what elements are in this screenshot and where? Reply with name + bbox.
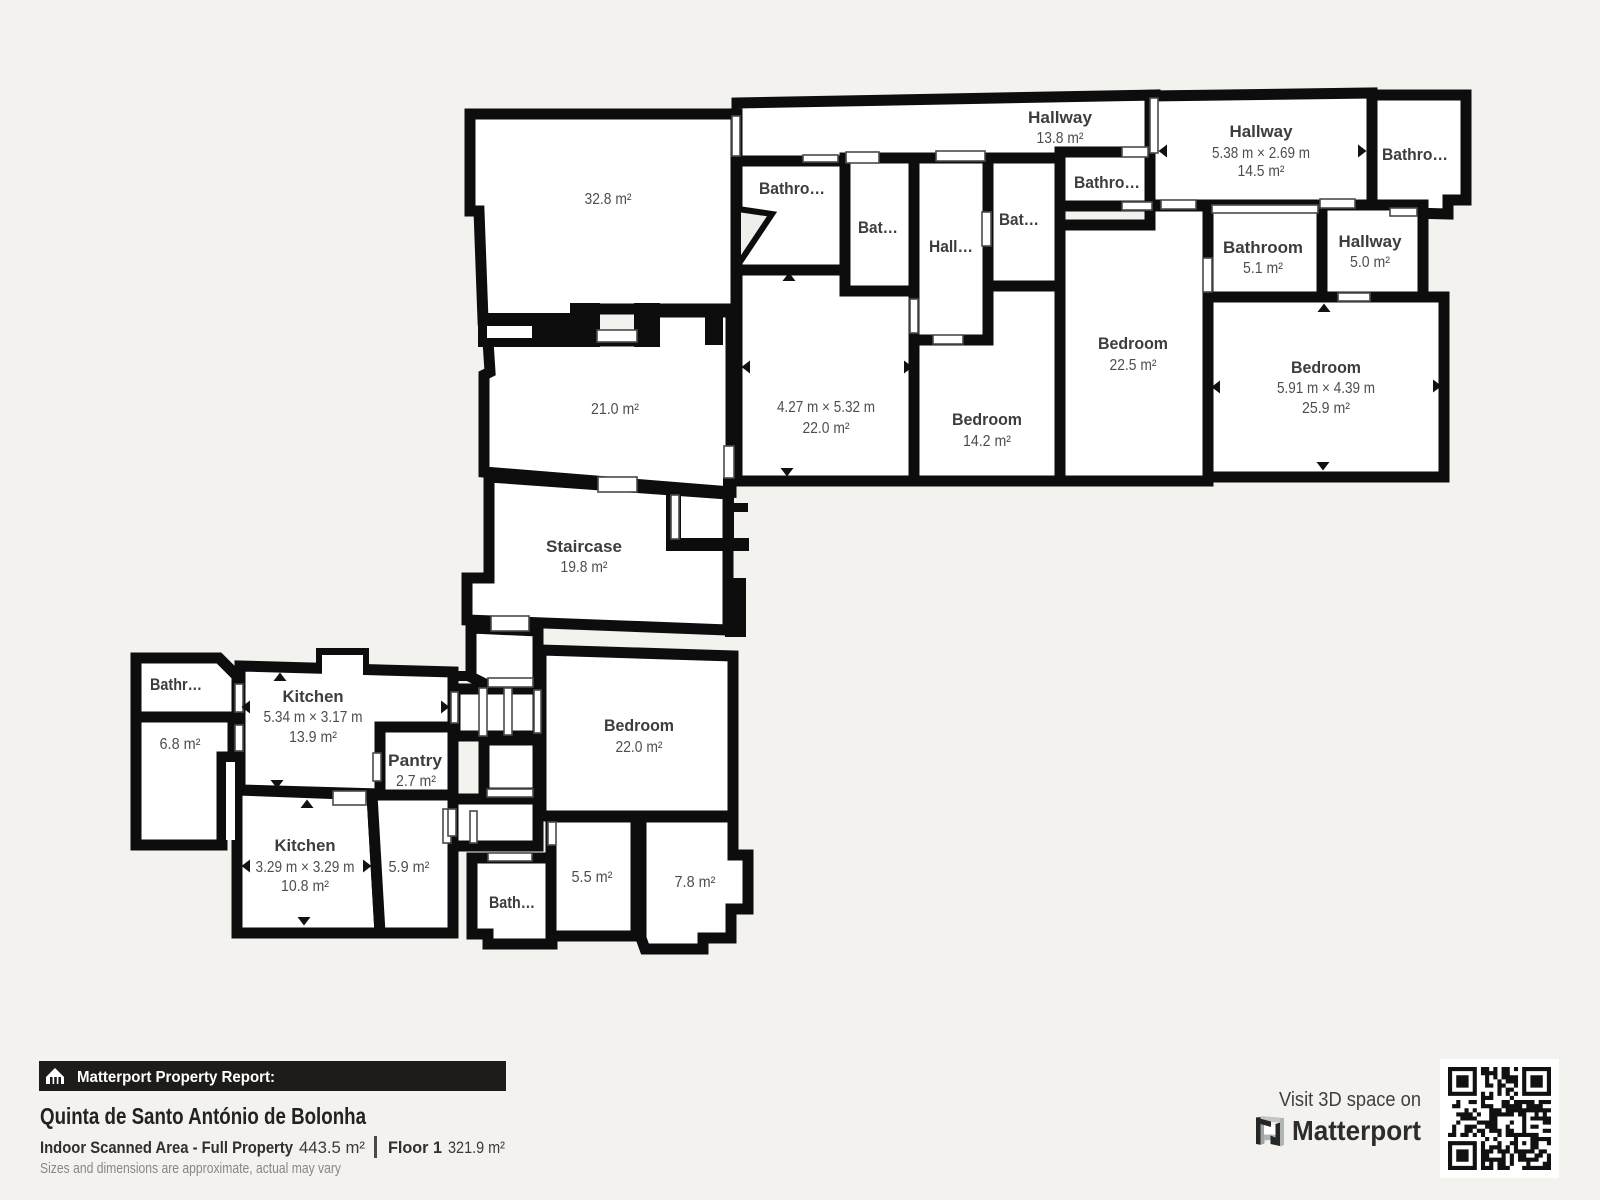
svg-text:Bathr…: Bathr… bbox=[150, 675, 202, 694]
svg-text:Hall…: Hall… bbox=[929, 237, 973, 256]
svg-text:22.0 m²: 22.0 m² bbox=[616, 739, 663, 756]
svg-text:7.8 m²: 7.8 m² bbox=[675, 874, 716, 891]
svg-text:Indoor Scanned Area - Full Pro: Indoor Scanned Area - Full Property bbox=[40, 1138, 293, 1157]
svg-text:443.5 m²: 443.5 m² bbox=[299, 1138, 365, 1157]
svg-text:Kitchen: Kitchen bbox=[275, 836, 336, 855]
svg-text:Bedroom: Bedroom bbox=[604, 716, 674, 735]
svg-text:Visit 3D space on: Visit 3D space on bbox=[1279, 1089, 1421, 1111]
svg-text:19.8 m²: 19.8 m² bbox=[561, 559, 608, 576]
svg-text:Hallway: Hallway bbox=[1230, 122, 1294, 141]
svg-text:22.5 m²: 22.5 m² bbox=[1110, 357, 1157, 374]
svg-text:Bedroom: Bedroom bbox=[952, 410, 1022, 429]
svg-text:Pantry: Pantry bbox=[388, 751, 443, 770]
svg-text:3.29 m × 3.29 m: 3.29 m × 3.29 m bbox=[256, 859, 355, 876]
svg-text:Hallway: Hallway bbox=[1028, 108, 1093, 127]
svg-text:5.91 m × 4.39 m: 5.91 m × 4.39 m bbox=[1277, 380, 1375, 397]
svg-text:Quinta de Santo António de Bol: Quinta de Santo António de Bolonha bbox=[40, 1103, 366, 1129]
svg-text:Hallway: Hallway bbox=[1339, 232, 1403, 251]
svg-text:Bath…: Bath… bbox=[489, 893, 535, 912]
svg-text:321.9 m²: 321.9 m² bbox=[448, 1138, 505, 1157]
svg-text:Bedroom: Bedroom bbox=[1291, 358, 1361, 377]
svg-text:5.5 m²: 5.5 m² bbox=[572, 869, 613, 886]
svg-text:5.38 m × 2.69 m: 5.38 m × 2.69 m bbox=[1212, 145, 1310, 162]
svg-text:6.8 m²: 6.8 m² bbox=[160, 736, 201, 753]
svg-text:Floor 1: Floor 1 bbox=[388, 1138, 442, 1157]
svg-text:5.1 m²: 5.1 m² bbox=[1243, 260, 1283, 277]
svg-text:14.5 m²: 14.5 m² bbox=[1238, 163, 1285, 180]
svg-text:10.8 m²: 10.8 m² bbox=[281, 878, 329, 895]
svg-text:Bathro…: Bathro… bbox=[759, 179, 825, 198]
svg-text:Matterport Property Report:: Matterport Property Report: bbox=[77, 1069, 275, 1086]
svg-text:4.27 m × 5.32 m: 4.27 m × 5.32 m bbox=[777, 399, 875, 416]
svg-text:Bathro…: Bathro… bbox=[1074, 173, 1140, 192]
svg-text:Sizes and dimensions are appro: Sizes and dimensions are approximate, ac… bbox=[40, 1161, 342, 1177]
svg-text:5.9 m²: 5.9 m² bbox=[389, 859, 430, 876]
svg-text:32.8 m²: 32.8 m² bbox=[585, 191, 632, 208]
svg-text:Bathroom: Bathroom bbox=[1223, 238, 1303, 257]
svg-text:Matterport: Matterport bbox=[1292, 1115, 1421, 1146]
svg-text:21.0 m²: 21.0 m² bbox=[591, 401, 639, 418]
svg-text:13.8 m²: 13.8 m² bbox=[1037, 130, 1084, 147]
svg-text:14.2 m²: 14.2 m² bbox=[963, 433, 1011, 450]
svg-text:Bedroom: Bedroom bbox=[1098, 334, 1168, 353]
svg-text:22.0 m²: 22.0 m² bbox=[803, 420, 850, 437]
svg-text:5.34 m × 3.17 m: 5.34 m × 3.17 m bbox=[264, 709, 363, 726]
svg-text:5.0 m²: 5.0 m² bbox=[1350, 254, 1390, 271]
svg-text:Bat…: Bat… bbox=[999, 210, 1039, 229]
svg-text:Kitchen: Kitchen bbox=[283, 687, 344, 706]
svg-text:Bat…: Bat… bbox=[858, 218, 898, 237]
svg-text:13.9 m²: 13.9 m² bbox=[289, 729, 337, 746]
svg-text:2.7 m²: 2.7 m² bbox=[396, 773, 436, 790]
svg-text:25.9 m²: 25.9 m² bbox=[1302, 400, 1350, 417]
svg-text:Bathro…: Bathro… bbox=[1382, 145, 1448, 164]
svg-text:Staircase: Staircase bbox=[546, 537, 622, 556]
